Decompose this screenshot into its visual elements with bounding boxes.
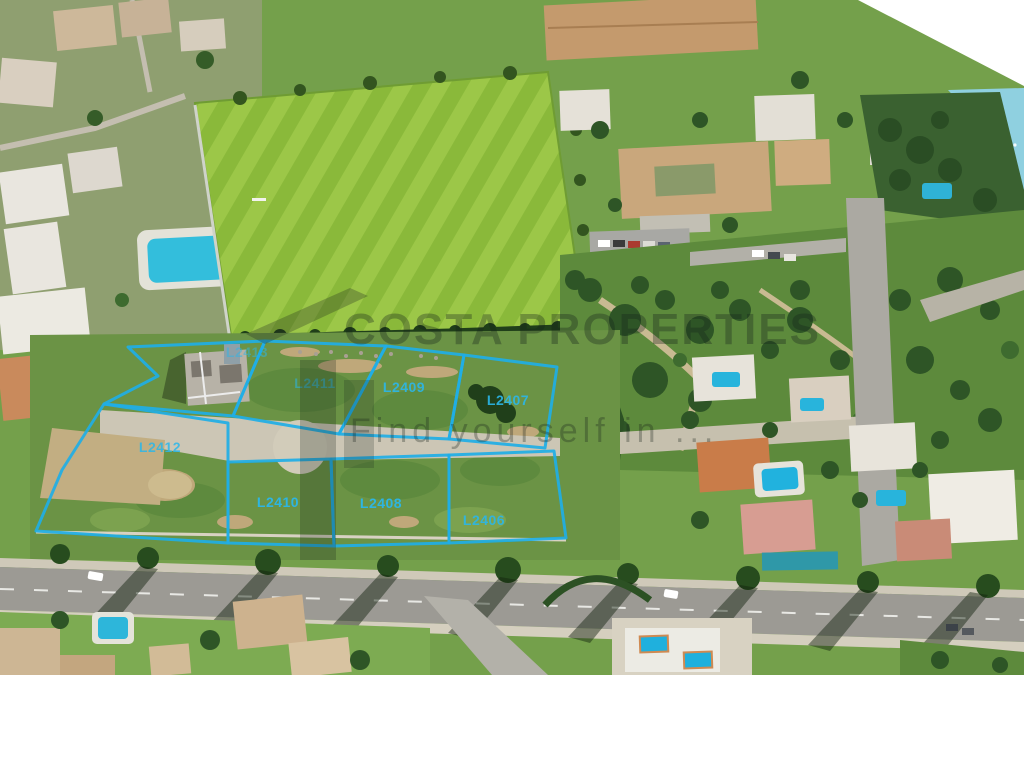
plot-label-L2407: L2407	[487, 392, 529, 408]
plot-label-L2409: L2409	[383, 379, 425, 395]
clifftop-pool	[922, 183, 952, 199]
watermark-logo-wall	[300, 360, 336, 560]
goal-posts	[252, 198, 266, 201]
plot-label-L2412: L2412	[139, 439, 181, 455]
plot-label-L2410: L2410	[257, 494, 299, 510]
photo-bottom-margin	[0, 675, 1024, 768]
teal-structure	[762, 551, 838, 570]
watermark-brand: COSTA PROPERTIES	[344, 305, 821, 354]
aerial-photo	[0, 0, 1024, 768]
screenshot-stage: L2413L2411L2409L2407L2412L2410L2408L2406…	[0, 0, 1024, 768]
plot-label-L2408: L2408	[360, 495, 402, 511]
coastal-trees	[860, 92, 1024, 230]
watermark-tagline: Find yourself in ...	[350, 412, 718, 450]
sports-field	[195, 66, 592, 343]
plot-label-L2406: L2406	[463, 512, 505, 528]
